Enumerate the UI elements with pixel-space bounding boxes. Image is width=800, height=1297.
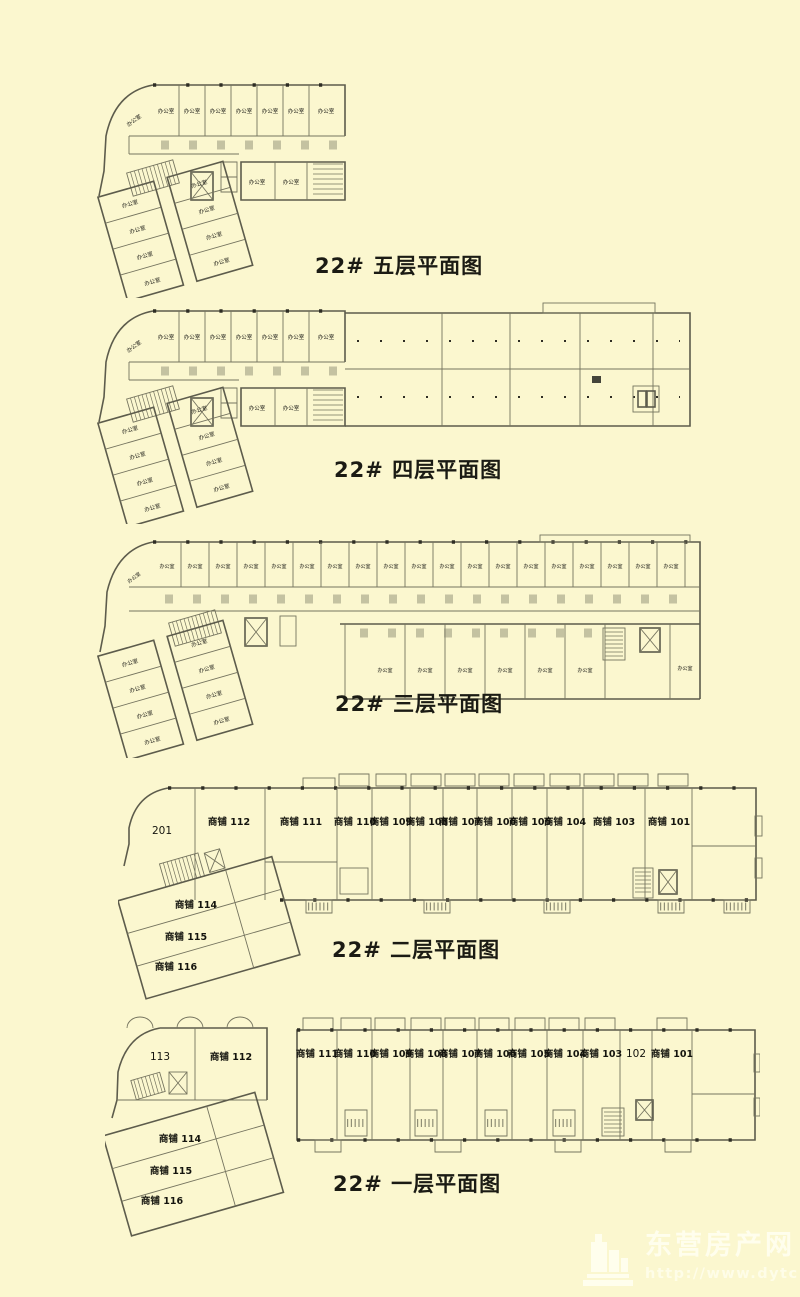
floor2-left-core bbox=[159, 847, 225, 887]
room-label-office: 办公室 bbox=[271, 563, 286, 570]
floor1-wing bbox=[105, 1092, 283, 1236]
room-label-office: 办公室 bbox=[288, 333, 305, 341]
room-label-office: 办公室 bbox=[663, 563, 678, 570]
room-label-shop101: 商铺 101 bbox=[648, 816, 690, 828]
floor4-plan-drawing: 办公室 办公室 办公室 办公室 办公室 办公室 办公室 办公室 办公室 办公室 … bbox=[95, 296, 695, 524]
floor5-wing: 办公室 办公室 办公室 办公室 办公室 办公室 办公室 办公室 bbox=[98, 161, 253, 298]
room-label-shop103: 商铺 103 bbox=[580, 1048, 622, 1060]
room-label-office: 办公室 bbox=[184, 333, 201, 341]
room-label-office: 办公室 bbox=[495, 563, 510, 570]
room-label-shop112: 商铺 112 bbox=[208, 816, 250, 828]
room-label-office: 办公室 bbox=[635, 563, 650, 570]
room-label-office: 办公室 bbox=[212, 481, 231, 493]
room-label-office: 办公室 bbox=[249, 404, 266, 412]
room-label-office: 办公室 bbox=[126, 571, 142, 585]
room-label-office: 办公室 bbox=[205, 455, 224, 467]
room-label-shop115: 商铺 115 bbox=[165, 931, 207, 943]
room-label-office: 办公室 bbox=[417, 667, 432, 674]
room-label-office: 办公室 bbox=[121, 656, 140, 668]
room-label-office: 办公室 bbox=[411, 563, 426, 570]
room-label-shop112: 商铺 112 bbox=[210, 1051, 252, 1063]
room-label-office: 办公室 bbox=[288, 107, 305, 115]
room-label-office: 办公室 bbox=[551, 563, 566, 570]
room-label-office: 办公室 bbox=[121, 423, 140, 435]
room-label-office: 办公室 bbox=[607, 563, 622, 570]
room-label-office: 办公室 bbox=[377, 667, 392, 674]
room-label-office: 办公室 bbox=[236, 333, 253, 341]
room-label-office: 办公室 bbox=[262, 333, 279, 341]
room-label-office: 办公室 bbox=[243, 563, 258, 570]
floor3-mid-elevator-icon bbox=[245, 616, 296, 646]
floor3-wing: 办公室 办公室 办公室 办公室 办公室 办公室 办公室 办公室 bbox=[98, 620, 253, 758]
floor1-left-stairs-icon bbox=[131, 1072, 165, 1099]
room-label-office: 办公室 bbox=[212, 714, 231, 726]
room-label-office: 办公室 bbox=[355, 563, 370, 570]
room-label-office: 办公室 bbox=[128, 682, 147, 694]
floor4-wing: 办公室 办公室 办公室 办公室 办公室 办公室 办公室 办公室 bbox=[98, 387, 253, 524]
floor1-right-core bbox=[602, 1100, 653, 1136]
floor2-right-core bbox=[633, 868, 677, 898]
watermark-text: 东营房产网 http://www.dytc.net bbox=[645, 1230, 800, 1282]
room-label-office: 办公室 bbox=[215, 563, 230, 570]
watermark: 东营房产网 http://www.dytc.net bbox=[583, 1230, 800, 1288]
room-label-office: 办公室 bbox=[136, 475, 155, 487]
floor2-walls bbox=[124, 774, 762, 913]
room-label-office: 办公室 bbox=[457, 667, 472, 674]
room-label-shop104: 商铺 104 bbox=[544, 816, 587, 828]
floor4-roof-terrace bbox=[345, 303, 690, 426]
watermark-url: http://www.dytc.net bbox=[645, 1266, 800, 1282]
room-label-office: 办公室 bbox=[205, 229, 224, 241]
room-label-office: 办公室 bbox=[467, 563, 482, 570]
room-label-office: 办公室 bbox=[158, 333, 175, 341]
plan-title-floor1: 22# 一层平面图 bbox=[333, 1168, 501, 1198]
room-label-shop101: 商铺 101 bbox=[651, 1048, 693, 1060]
room-label-office: 办公室 bbox=[143, 734, 162, 746]
watermark-title: 东营房产网 bbox=[645, 1230, 800, 1261]
room-label-office: 办公室 bbox=[210, 333, 227, 341]
room-label-201: 201 bbox=[152, 825, 172, 837]
room-label-office: 办公室 bbox=[523, 563, 538, 570]
room-label-office: 办公室 bbox=[159, 563, 174, 570]
room-label-office: 办公室 bbox=[128, 223, 147, 235]
room-label-102: 102 bbox=[626, 1048, 646, 1060]
floor1-left-block bbox=[105, 1017, 283, 1236]
room-label-office: 办公室 bbox=[283, 178, 300, 186]
floor5-plan-drawing: 办公室 办公室 办公室 办公室 办公室 办公室 办公室 办公室 办公室 办公室 … bbox=[95, 76, 347, 298]
floor2-wing bbox=[118, 857, 300, 999]
floor3-plan-drawing: 办公室 办公室 办公室 办公室 办公室 办公室 办公室 办公室 办公室 办公室 … bbox=[95, 532, 705, 758]
room-label-office: 办公室 bbox=[210, 107, 227, 115]
room-label-113: 113 bbox=[150, 1051, 170, 1063]
room-label-office: 办公室 bbox=[136, 708, 155, 720]
room-label-shop103: 商铺 103 bbox=[593, 816, 635, 828]
room-label-office: 办公室 bbox=[158, 107, 175, 115]
room-label-office: 办公室 bbox=[537, 667, 552, 674]
room-label-office: 办公室 bbox=[318, 333, 335, 341]
room-label-office: 办公室 bbox=[198, 204, 217, 216]
room-label-office: 办公室 bbox=[190, 178, 209, 190]
plan-title-floor4: 22# 四层平面图 bbox=[334, 454, 502, 484]
room-label-office: 办公室 bbox=[143, 501, 162, 513]
room-label-shop114: 商铺 114 bbox=[159, 1133, 202, 1145]
room-label-office: 办公室 bbox=[283, 404, 300, 412]
room-label-shop114: 商铺 114 bbox=[175, 899, 218, 911]
room-label-office: 办公室 bbox=[249, 178, 266, 186]
room-label-office: 办公室 bbox=[236, 107, 253, 115]
floor2-plan-drawing: 201 商铺 112 商铺 111 商铺 110 商铺 109 商铺 108 商… bbox=[118, 766, 764, 1016]
room-label-office: 办公室 bbox=[198, 663, 217, 675]
room-label-office: 办公室 bbox=[677, 665, 692, 672]
room-label-office: 办公室 bbox=[262, 107, 279, 115]
room-label-office: 办公室 bbox=[383, 563, 398, 570]
floor4-left-block: 办公室 办公室 办公室 办公室 办公室 办公室 办公室 办公室 办公室 办公室 … bbox=[98, 311, 345, 524]
floor1-left-elevator-icon bbox=[169, 1072, 187, 1094]
room-label-office: 办公室 bbox=[205, 688, 224, 700]
room-label-office: 办公室 bbox=[136, 249, 155, 261]
room-label-office: 办公室 bbox=[125, 112, 143, 128]
room-label-office: 办公室 bbox=[579, 563, 594, 570]
room-label-office: 办公室 bbox=[318, 107, 335, 115]
room-label-office: 办公室 bbox=[497, 667, 512, 674]
room-label-shop116: 商铺 116 bbox=[155, 961, 198, 973]
floor-plan-sheet: 办公室 办公室 办公室 办公室 办公室 办公室 办公室 办公室 办公室 办公室 … bbox=[0, 0, 800, 1297]
room-label-office: 办公室 bbox=[121, 197, 140, 209]
room-label-shop115: 商铺 115 bbox=[150, 1165, 192, 1177]
plan-title-floor2: 22# 二层平面图 bbox=[332, 934, 500, 964]
room-label-office: 办公室 bbox=[143, 275, 162, 287]
room-label-office: 办公室 bbox=[212, 255, 231, 267]
room-label-office: 办公室 bbox=[299, 563, 314, 570]
room-label-shop111: 商铺 111 bbox=[280, 816, 322, 828]
building-icon bbox=[583, 1230, 633, 1288]
floor1-plan-drawing: 113 商铺 112 商铺 111 商铺 110 商铺 109 商铺 108 商… bbox=[105, 1014, 760, 1248]
room-label-office: 办公室 bbox=[187, 563, 202, 570]
room-label-office: 办公室 bbox=[577, 667, 592, 674]
room-label-office: 办公室 bbox=[125, 338, 143, 354]
room-label-office: 办公室 bbox=[198, 430, 217, 442]
room-label-office: 办公室 bbox=[128, 449, 147, 461]
room-label-shop116: 商铺 116 bbox=[141, 1195, 184, 1207]
floor5-walls bbox=[99, 85, 345, 200]
floor3-core bbox=[603, 628, 660, 660]
floor4-roof-elevator-icon bbox=[633, 386, 659, 412]
plan-title-floor3: 22# 三层平面图 bbox=[335, 688, 503, 718]
plan-title-floor5: 22# 五层平面图 bbox=[315, 250, 483, 280]
room-label-office: 办公室 bbox=[327, 563, 342, 570]
room-label-office: 办公室 bbox=[439, 563, 454, 570]
room-label-office: 办公室 bbox=[190, 637, 209, 649]
room-label-office: 办公室 bbox=[190, 404, 209, 416]
room-label-shop111: 商铺 111 bbox=[296, 1048, 338, 1060]
floor1-strip-walls bbox=[297, 1018, 760, 1152]
room-label-office: 办公室 bbox=[184, 107, 201, 115]
